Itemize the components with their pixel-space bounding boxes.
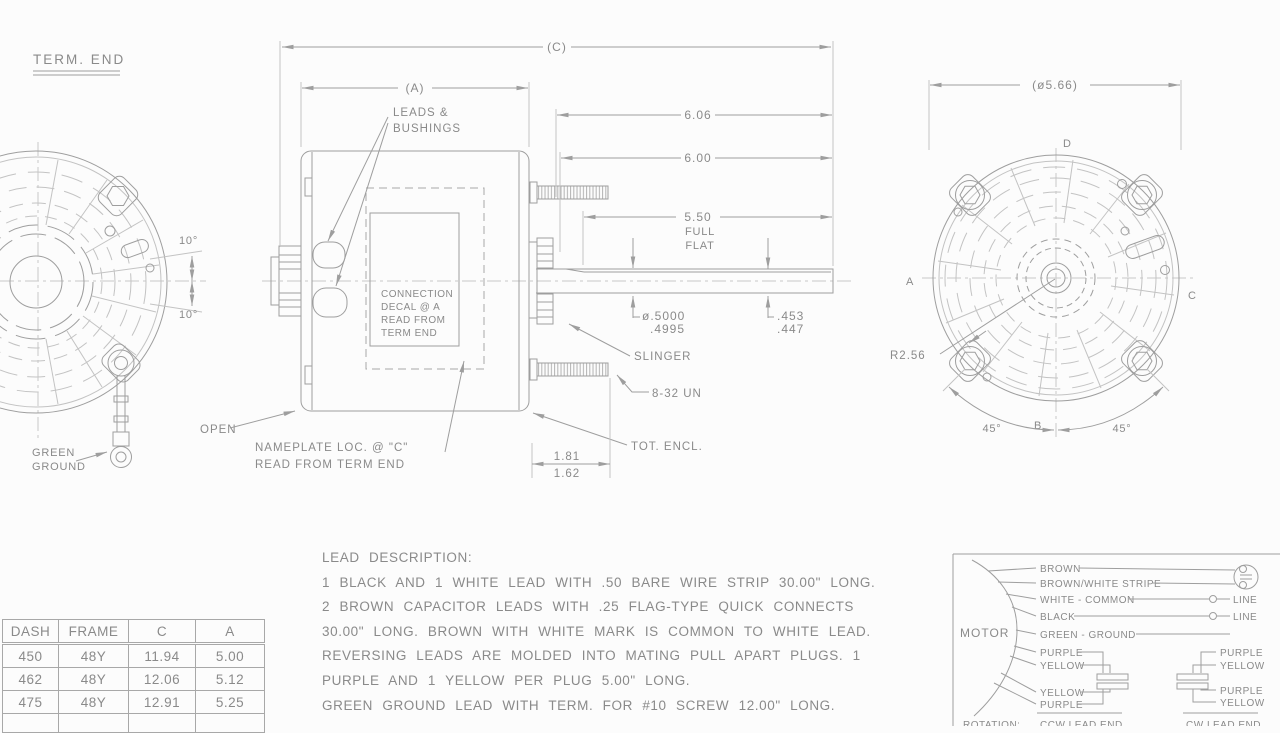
vent-slot [119, 238, 150, 260]
lead-label: PURPLE [1040, 700, 1083, 711]
capacitor-symbol [1234, 565, 1258, 589]
lead-description-line: 2 BROWN CAPACITOR LEADS WITH .25 FLAG-TY… [322, 595, 875, 620]
slinger-label: SLINGER [634, 351, 692, 363]
lead-label: PURPLE [1040, 648, 1083, 659]
right-lead-label: YELLOW [1220, 661, 1265, 672]
point-d: D [1063, 138, 1072, 150]
cw-label: CW LEAD END [1186, 720, 1261, 726]
lead-label: YELLOW [1040, 688, 1085, 699]
right-lead-label: PURPLE [1220, 686, 1263, 697]
lead-description-line: REVERSING LEADS ARE MOLDED INTO MATING P… [322, 644, 875, 669]
lead-label: BROWN/WHITE STRIPE [1040, 579, 1161, 590]
plug-symbols [1097, 674, 1208, 689]
dim-housing-dia: (ø5.66) [929, 78, 1181, 150]
table-row: 475 48Y 12.91 5.25 [3, 691, 265, 714]
lead-description-line: 1 BLACK AND 1 WHITE LEAD WITH .50 BARE W… [322, 571, 875, 596]
motor-engineering-drawing: { "colors": {"background":"#fcfcfc","lin… [0, 0, 1280, 726]
lead-label: BROWN [1040, 564, 1081, 575]
lead-bushing [313, 242, 345, 268]
lead-description-line: PURPLE AND 1 YELLOW PER PLUG 5.00" LONG. [322, 669, 875, 694]
header-frame: FRAME [59, 620, 129, 644]
vent-hole [146, 264, 154, 272]
svg-text:(A): (A) [406, 81, 425, 95]
svg-text:DECAL @ A: DECAL @ A [381, 302, 440, 313]
svg-text:45°: 45° [982, 423, 1001, 435]
green-ground-label: GREEN [32, 447, 75, 459]
dim-hub: 1.81 1.62 [532, 378, 610, 480]
angle-top: 10° [179, 235, 198, 247]
svg-text:1.62: 1.62 [554, 468, 580, 480]
line-terminal [1210, 596, 1217, 603]
open-label: OPEN [200, 424, 237, 436]
vent-hole [105, 226, 115, 236]
table-row [3, 714, 265, 733]
leads-bushings-label: LEADS & [393, 107, 449, 119]
svg-text:R2.56: R2.56 [890, 350, 926, 362]
tot-encl-label: TOT. ENCL. [631, 441, 703, 453]
dimension-table: DASH FRAME C A 450 48Y 11.94 5.00 462 48… [2, 619, 265, 733]
svg-text:.4995: .4995 [650, 322, 685, 336]
lead-label: YELLOW [1040, 661, 1085, 672]
vent-hole [1161, 266, 1170, 275]
stud-bottom [537, 363, 608, 376]
svg-text:READ FROM TERM END: READ FROM TERM END [255, 459, 405, 471]
wiring-diagram: MOTOR BROWN BROWN/WHITE STRIPE WHITE - C… [953, 554, 1280, 726]
dim-550-full-flat: 5.50 FULL FLAT [583, 210, 832, 265]
decal-text: CONNECTION [381, 289, 453, 300]
svg-text:TERM END: TERM END [381, 328, 437, 339]
svg-text:45°: 45° [1112, 423, 1131, 435]
point-b: B [1034, 420, 1042, 432]
side-view: CONNECTION DECAL @ A READ FROM TERM END … [200, 40, 852, 480]
hex-nut [107, 187, 129, 206]
table-header-row: DASH FRAME C A [3, 620, 265, 644]
ground-lead [99, 341, 143, 467]
point-c: C [1188, 290, 1197, 302]
right-lead-label: PURPLE [1220, 648, 1263, 659]
svg-text:FLAT: FLAT [685, 240, 714, 252]
header-a: A [196, 620, 265, 644]
lead-description-line: 30.00" LONG. BROWN WITH WHITE MARK IS CO… [322, 620, 875, 645]
svg-text:.447: .447 [777, 322, 804, 336]
svg-text:6.06: 6.06 [684, 108, 711, 122]
header-dash: DASH [3, 620, 59, 644]
lead-label: BLACK [1040, 612, 1075, 623]
dim-flat-depth: .453 .447 [768, 238, 804, 336]
ring-terminal [111, 447, 132, 468]
lead-description-line: GREEN GROUND LEAD WITH TERM. FOR #10 SCR… [322, 694, 875, 719]
svg-text:GROUND: GROUND [32, 461, 86, 473]
svg-text:5.50: 5.50 [684, 210, 711, 224]
svg-text:1.81: 1.81 [554, 451, 580, 463]
line-label-1: LINE [1233, 595, 1257, 606]
term-end-housing [0, 151, 167, 413]
lead-description: LEAD DESCRIPTION: 1 BLACK AND 1 WHITE LE… [322, 546, 875, 718]
point-a: A [906, 276, 914, 288]
svg-text:(C): (C) [547, 40, 567, 54]
svg-text:6.00: 6.00 [684, 151, 711, 165]
right-lead-label: YELLOW [1220, 698, 1265, 709]
nameplate-label: NAMEPLATE LOC. @ "C" [255, 442, 408, 454]
stud-top [537, 186, 608, 199]
rotation-label: ROTATION: [963, 720, 1020, 726]
header-c: C [129, 620, 196, 644]
lead-label: GREEN - GROUND [1040, 630, 1136, 641]
svg-text:BUSHINGS: BUSHINGS [393, 123, 461, 135]
nameplate-zone [366, 188, 484, 369]
line-terminal [1210, 613, 1217, 620]
ground-leader [76, 452, 107, 461]
term-end-view: TERM. END [0, 52, 206, 473]
svg-text:READ FROM: READ FROM [381, 315, 446, 326]
svg-text:(ø5.66): (ø5.66) [1032, 78, 1078, 92]
connection-decal-box [370, 213, 459, 346]
dim-bolt-radius: R2.56 [890, 279, 1055, 362]
lead-label: WHITE - COMMON [1040, 595, 1135, 606]
svg-text:ø.5000: ø.5000 [642, 309, 685, 323]
ccw-label: CCW LEAD END [1040, 720, 1123, 726]
lead-description-title: LEAD DESCRIPTION: [322, 546, 875, 571]
dim-shaft-dia: ø.5000 .4995 [633, 238, 685, 336]
angle-bottom: 10° [179, 309, 198, 321]
term-end-title: TERM. END [33, 52, 125, 67]
line-label-2: LINE [1233, 612, 1257, 623]
stud-label: 8-32 UN [652, 388, 702, 400]
svg-text:FULL: FULL [685, 226, 715, 238]
shaft-end-view: (ø5.66) D A C B R2.56 45° 45° [890, 78, 1197, 440]
lead-bushing [313, 288, 347, 317]
table-row: 462 48Y 12.06 5.12 [3, 668, 265, 691]
table-row: 450 48Y 11.94 5.00 [3, 644, 265, 668]
motor-label: MOTOR [960, 626, 1009, 640]
svg-text:.453: .453 [777, 309, 804, 323]
